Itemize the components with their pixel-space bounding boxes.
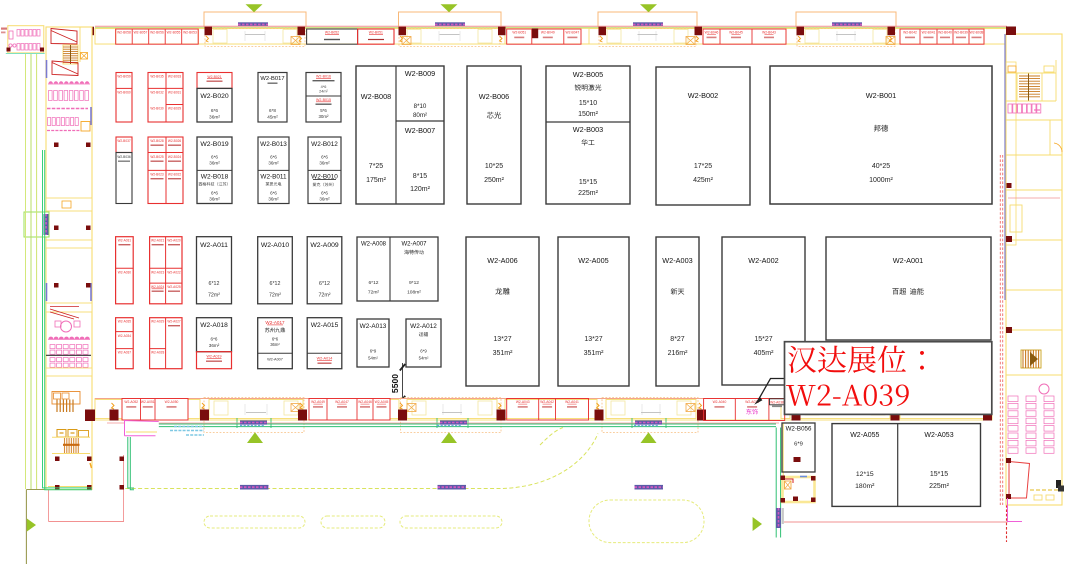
svg-text:W2-A001: W2-A001: [893, 256, 923, 265]
svg-text:W2-B007: W2-B007: [405, 126, 435, 135]
svg-text:W2-A022: W2-A022: [167, 270, 181, 274]
svg-text:W2-A046: W2-A046: [358, 400, 372, 404]
svg-text:W2-B059: W2-B059: [117, 75, 131, 79]
svg-text:W2-B039: W2-B039: [954, 31, 968, 35]
svg-text:W2-B057: W2-B057: [134, 31, 148, 35]
svg-text:72m²: 72m²: [318, 293, 330, 299]
svg-text:W2-A041: W2-A041: [565, 400, 579, 404]
svg-text:13*27: 13*27: [584, 336, 602, 343]
svg-text:5500: 5500: [390, 374, 400, 393]
svg-text:W2-B009: W2-B009: [405, 69, 435, 78]
svg-text:W2-A045: W2-A045: [375, 400, 389, 404]
svg-text:36m²: 36m²: [268, 161, 279, 166]
svg-text:W2-A007: W2-A007: [267, 358, 283, 362]
svg-text:W2-A005: W2-A005: [578, 256, 608, 265]
svg-text:W2-B024: W2-B024: [168, 155, 182, 159]
svg-text:W2-B051: W2-B051: [369, 31, 383, 35]
svg-text:36m²: 36m²: [209, 343, 220, 348]
svg-text:36m²: 36m²: [268, 197, 279, 202]
svg-text:8*10: 8*10: [414, 103, 427, 110]
svg-text:12*15: 12*15: [856, 471, 874, 478]
svg-text:W2-A047: W2-A047: [335, 400, 349, 404]
svg-text:36m²: 36m²: [209, 197, 220, 202]
svg-text:W2-B005: W2-B005: [573, 70, 603, 79]
svg-text:W2-B031: W2-B031: [168, 91, 182, 95]
svg-text:W2-A020: W2-A020: [167, 239, 181, 243]
svg-text:W2-B018: W2-B018: [201, 174, 229, 181]
svg-text:6*6: 6*6: [211, 337, 218, 342]
svg-text:W2-A019: W2-A019: [207, 355, 222, 359]
svg-text:W2-B035: W2-B035: [150, 75, 164, 79]
svg-text:180m²: 180m²: [855, 483, 875, 490]
svg-text:150m²: 150m²: [578, 111, 599, 118]
svg-text:15*15: 15*15: [579, 179, 597, 186]
svg-text:W2-B053: W2-B053: [183, 31, 197, 35]
svg-text:36m²: 36m²: [319, 197, 330, 202]
svg-text:W2-B052: W2-B052: [325, 31, 339, 35]
svg-text:W2-A009: W2-A009: [310, 242, 339, 249]
svg-text:30m²: 30m²: [318, 114, 329, 119]
svg-text:W2-A034: W2-A034: [118, 334, 132, 338]
svg-text:6*9: 6*9: [370, 349, 377, 354]
svg-text:W2-A052: W2-A052: [124, 400, 138, 404]
svg-text:W2-B003: W2-B003: [573, 125, 603, 134]
svg-text:W2-A040: W2-A040: [713, 400, 727, 404]
svg-text:W2-A010: W2-A010: [261, 242, 290, 249]
svg-text:W2-A031: W2-A031: [118, 239, 132, 243]
svg-text:W2-A013: W2-A013: [360, 323, 387, 330]
svg-text:351m²: 351m²: [493, 350, 514, 357]
svg-text:W2-B043: W2-B043: [762, 31, 776, 35]
svg-text:W2-A049: W2-A049: [311, 400, 325, 404]
svg-text:7*25: 7*25: [369, 163, 384, 170]
svg-text:72m²: 72m²: [368, 290, 380, 296]
svg-text:W2-A043: W2-A043: [516, 400, 530, 404]
svg-text:W2-A051: W2-A051: [141, 400, 155, 404]
svg-text:W2-B002: W2-B002: [688, 91, 718, 100]
svg-text:W2-B040: W2-B040: [938, 31, 952, 35]
svg-text:15*15: 15*15: [930, 471, 948, 478]
svg-text:10*25: 10*25: [485, 163, 503, 170]
svg-text:W2-B042: W2-B042: [903, 31, 917, 35]
svg-text:175m²: 175m²: [366, 177, 387, 184]
svg-text:W2-A021: W2-A021: [151, 239, 165, 243]
svg-text:6*6: 6*6: [211, 155, 218, 160]
svg-text:W2-B032: W2-B032: [150, 91, 164, 95]
svg-text:36m²: 36m²: [319, 161, 330, 166]
svg-text:W2-A007: W2-A007: [401, 242, 427, 248]
svg-text:250m²: 250m²: [484, 177, 505, 184]
svg-text:54m²: 54m²: [368, 356, 378, 361]
svg-text:5*6: 5*6: [320, 108, 327, 113]
svg-text:W2-A008: W2-A008: [361, 242, 387, 248]
svg-text:W2-B016: W2-B016: [316, 75, 331, 79]
svg-text:4*6: 4*6: [321, 85, 327, 89]
svg-text:W2-A038: W2-A038: [770, 400, 784, 404]
svg-text:6*9: 6*9: [420, 349, 427, 354]
svg-text:W2-A025: W2-A025: [167, 285, 181, 289]
svg-text:W2-B012: W2-B012: [311, 141, 338, 148]
svg-text:17*25: 17*25: [694, 163, 712, 170]
svg-text:W2-B006: W2-B006: [479, 92, 509, 101]
svg-text:W2-A002: W2-A002: [748, 256, 778, 265]
svg-text:6*6: 6*6: [321, 155, 328, 160]
svg-text:W2-A042: W2-A042: [540, 400, 554, 404]
svg-text:W2-B036: W2-B036: [117, 155, 131, 159]
svg-text:W2-A015: W2-A015: [311, 322, 339, 329]
svg-text:72m²: 72m²: [269, 293, 281, 299]
svg-text:216m²: 216m²: [668, 350, 689, 357]
svg-text:W2-B049: W2-B049: [541, 31, 555, 35]
svg-text:W2-B008: W2-B008: [361, 92, 391, 101]
svg-text:W2-A053: W2-A053: [924, 432, 953, 439]
svg-text:W2-B022: W2-B022: [168, 173, 182, 177]
svg-text:351m²: 351m²: [584, 350, 605, 357]
svg-text:W2-B019: W2-B019: [200, 141, 229, 148]
svg-text:54m²: 54m²: [419, 356, 429, 361]
svg-text:6*9: 6*9: [794, 442, 803, 448]
svg-text:6*12: 6*12: [270, 281, 281, 287]
svg-text:W2-A027: W2-A027: [167, 320, 181, 324]
svg-text:15*27: 15*27: [754, 336, 772, 343]
svg-text:6*6: 6*6: [272, 337, 279, 342]
svg-text:6*6: 6*6: [270, 191, 277, 196]
svg-text:W2-A018: W2-A018: [200, 322, 228, 329]
svg-text:6*12: 6*12: [319, 281, 330, 287]
svg-text:6*6: 6*6: [321, 191, 328, 196]
svg-text:W2-B017: W2-B017: [260, 76, 284, 82]
svg-text:W2-A030: W2-A030: [118, 270, 132, 274]
svg-text:W2-B037: W2-B037: [117, 139, 131, 143]
svg-text:W2-B046: W2-B046: [705, 31, 719, 35]
svg-text:W2-A023: W2-A023: [151, 270, 165, 274]
svg-text:W2-A050: W2-A050: [165, 400, 179, 404]
svg-text:W2-B038: W2-B038: [970, 31, 984, 35]
svg-text:W2-B011: W2-B011: [260, 174, 287, 181]
svg-text:W2-B026: W2-B026: [168, 139, 182, 143]
svg-text:W2-A017: W2-A017: [265, 320, 285, 325]
svg-text:6*12: 6*12: [209, 281, 220, 287]
svg-text:W2-B060: W2-B060: [117, 91, 131, 95]
svg-text:W2-A006: W2-A006: [487, 256, 517, 265]
svg-text:W2-B015: W2-B015: [316, 98, 331, 102]
svg-text:13*27: 13*27: [493, 336, 511, 343]
svg-text:W2-B028: W2-B028: [150, 139, 164, 143]
svg-text:W2-B058: W2-B058: [117, 31, 131, 35]
svg-text:8*15: 8*15: [413, 173, 428, 180]
svg-text:36m²: 36m²: [209, 161, 220, 166]
svg-text:9*12: 9*12: [409, 280, 419, 286]
svg-text:6*6: 6*6: [211, 108, 219, 114]
svg-text:8*27: 8*27: [670, 336, 685, 343]
svg-text:W2-A003: W2-A003: [662, 256, 692, 265]
svg-text:W2-A029: W2-A029: [151, 320, 165, 324]
svg-text:W2-B051: W2-B051: [512, 31, 526, 35]
svg-text:W2-A012: W2-A012: [410, 323, 437, 330]
svg-text:W2-B030: W2-B030: [150, 107, 164, 111]
svg-text:405m²: 405m²: [754, 350, 775, 357]
svg-text:W2-B001: W2-B001: [866, 91, 896, 100]
svg-text:108m²: 108m²: [407, 290, 421, 296]
svg-text:80m²: 80m²: [413, 112, 427, 119]
svg-text:W2-B025: W2-B025: [150, 155, 164, 159]
svg-text:36m²: 36m²: [270, 342, 280, 347]
svg-text:40*25: 40*25: [872, 163, 890, 170]
svg-text:W2-B055: W2-B055: [167, 31, 181, 35]
svg-text:W2-B045: W2-B045: [729, 31, 743, 35]
svg-text:6*12: 6*12: [368, 280, 378, 286]
svg-text:6*6: 6*6: [270, 155, 277, 160]
svg-text:W2-A024: W2-A024: [151, 285, 165, 289]
svg-text:225m²: 225m²: [929, 483, 950, 490]
svg-text:W2-A014: W2-A014: [317, 357, 333, 361]
svg-text:24m²: 24m²: [319, 90, 328, 94]
svg-text:6*6: 6*6: [211, 191, 218, 196]
svg-text:W2-A028: W2-A028: [151, 351, 165, 355]
svg-text:1000m²: 1000m²: [869, 177, 893, 184]
svg-text:W2-B013: W2-B013: [260, 141, 287, 148]
svg-text:W2-B047: W2-B047: [566, 31, 580, 35]
svg-text:W2-A011: W2-A011: [200, 242, 228, 249]
svg-text:W2-A035: W2-A035: [118, 320, 132, 324]
svg-text:15*10: 15*10: [579, 100, 597, 107]
svg-text:W2-B029: W2-B029: [168, 107, 182, 111]
svg-text:225m²: 225m²: [578, 190, 599, 197]
svg-text:W2-A037: W2-A037: [118, 351, 132, 355]
svg-text:W2-B033: W2-B033: [168, 75, 182, 79]
svg-text:W2-B041: W2-B041: [922, 31, 936, 35]
svg-text:36m²: 36m²: [209, 115, 220, 121]
svg-text:W2-B023: W2-B023: [150, 173, 164, 177]
svg-text:6*8: 6*8: [269, 108, 276, 113]
svg-text:425m²: 425m²: [693, 177, 714, 184]
svg-text:120m²: 120m²: [410, 186, 431, 193]
svg-text:W2-B056: W2-B056: [786, 426, 812, 433]
svg-text:W2-A055: W2-A055: [850, 432, 879, 439]
svg-text:45m²: 45m²: [267, 115, 278, 120]
svg-text:72m²: 72m²: [208, 293, 220, 299]
svg-text:W2-B020: W2-B020: [200, 93, 229, 100]
svg-text:W2-B021: W2-B021: [207, 75, 221, 79]
svg-text:W2-B056: W2-B056: [150, 31, 164, 35]
